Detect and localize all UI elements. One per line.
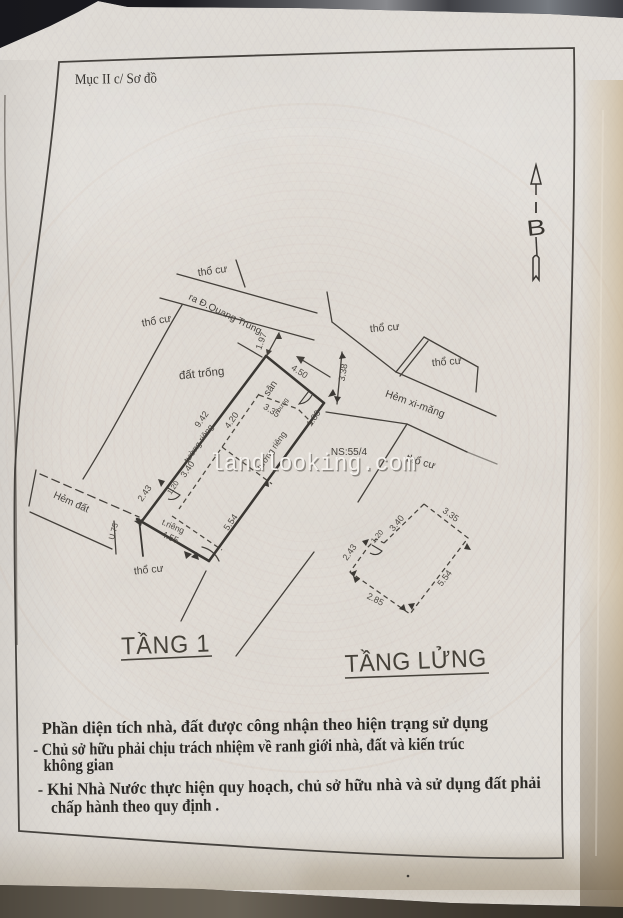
svg-text:B: B	[526, 215, 547, 241]
svg-text:landlooking.com: landlooking.com	[210, 451, 416, 478]
svg-text:chấp hành theo quy định .: chấp hành theo quy định .	[51, 796, 219, 817]
svg-text:không gian: không gian	[43, 755, 114, 775]
svg-text:Mục II c/ Sơ đồ: Mục II c/ Sơ đồ	[75, 71, 157, 88]
